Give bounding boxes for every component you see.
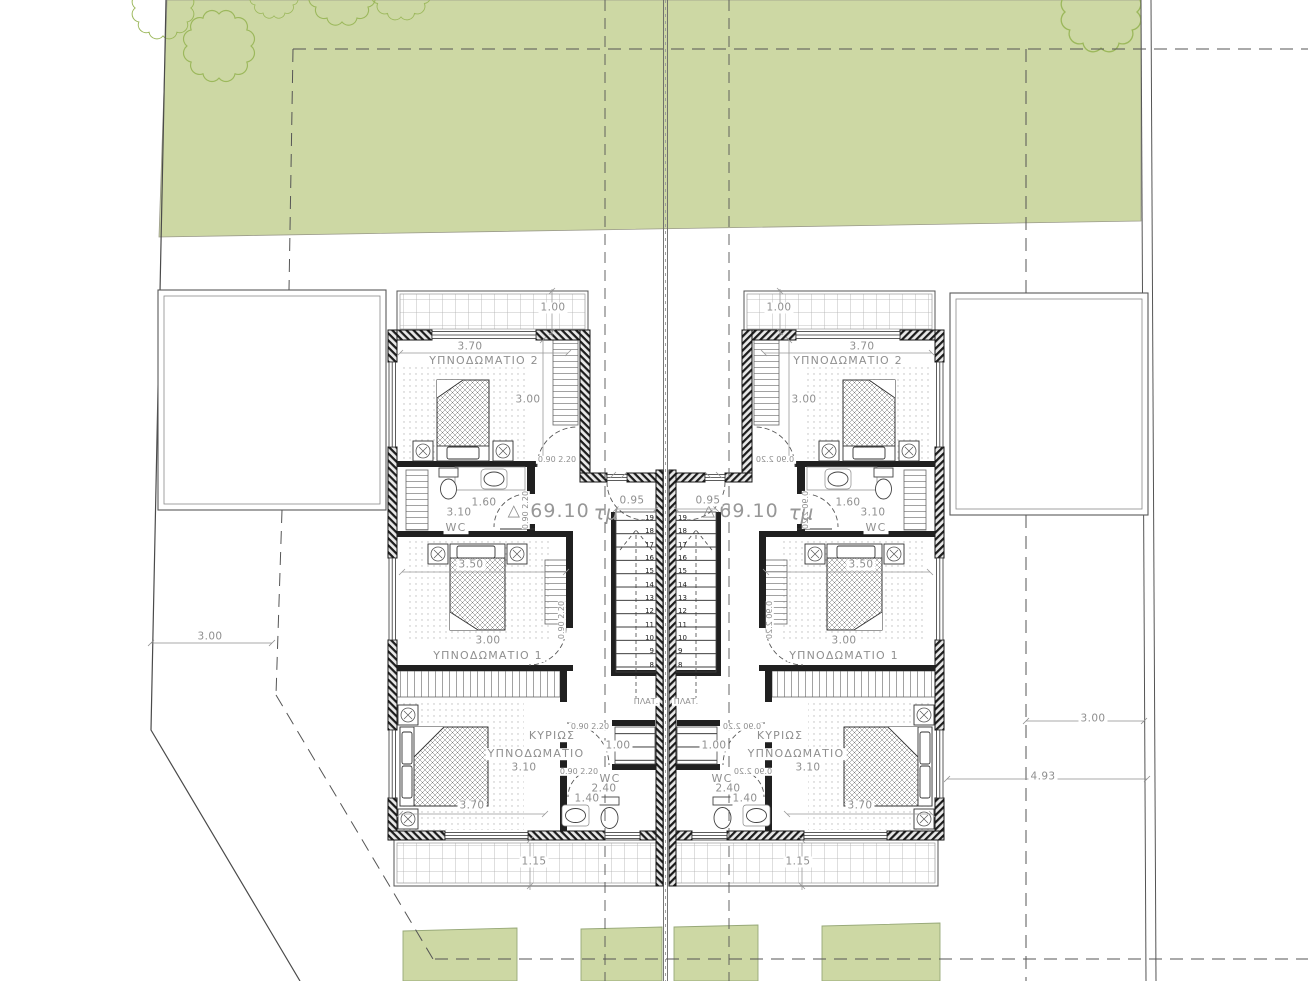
right-master-width-dim: 3.70: [846, 800, 875, 811]
left-wc1-width-dim: 1.60: [470, 497, 499, 508]
left-bed2-width-dim: 3.70: [456, 341, 485, 352]
site-dim-right-setback: 3.00: [1079, 713, 1108, 724]
left-bed2-depth-dim: 3.00: [514, 394, 543, 405]
left-stair-numbers: 1918171615141312111098: [637, 512, 654, 672]
left-balcony-bottom-dim: 1.15: [520, 856, 549, 867]
right-master-door-dim: 0.90 2.20: [721, 723, 763, 731]
left-landing-label: ΠΛΑΤ.: [632, 698, 660, 706]
right-area-value: 69.10: [719, 502, 778, 522]
stair-step-number: 9: [637, 645, 654, 658]
stair-step-number: 18: [637, 525, 654, 538]
left-bed1-door-dim: 0.90 2.20: [558, 601, 566, 639]
left-bed2-door-dim: 0.90 2.20: [536, 456, 578, 464]
stair-step-number: 19: [637, 512, 654, 525]
stair-step-number: 9: [678, 645, 695, 658]
floor-plan: 3.003.004.931.003.70ΥΠΝΟΔΩΜΑΤΙΟ 23.000.9…: [0, 0, 1308, 981]
stair-step-number: 10: [637, 632, 654, 645]
stair-step-number: 11: [637, 619, 654, 632]
stair-step-number: 8: [678, 659, 695, 672]
right-master-depth-dim: 3.10: [794, 762, 823, 773]
left-bed1-name: ΥΠΝΟΔΩΜΑΤΙΟ 1: [431, 650, 545, 662]
right-wc1-length-dim: 3.10: [859, 507, 888, 518]
right-bed1-depth-dim: 3.00: [830, 635, 859, 646]
left-master-depth-dim: 3.10: [510, 762, 539, 773]
stair-step-number: 16: [637, 552, 654, 565]
right-hall-width-dim: 1.00: [700, 740, 729, 751]
left-bed2-name: ΥΠΝΟΔΩΜΑΤΙΟ 2: [427, 355, 541, 367]
stair-step-number: 12: [637, 605, 654, 618]
stair-step-number: 18: [678, 525, 695, 538]
stair-step-number: 13: [678, 592, 695, 605]
left-area-triangle: △: [508, 503, 521, 520]
stair-step-number: 12: [678, 605, 695, 618]
left-wc1-door-dim: 0.90 2.20: [522, 491, 530, 529]
site-dim-right-offset: 4.93: [1029, 771, 1058, 782]
right-wc2-door-dim: 0.90 2.20: [732, 768, 774, 776]
left-master-width-dim: 3.70: [458, 800, 487, 811]
left-wc1-name: WC: [444, 522, 469, 534]
right-bed2-depth-dim: 3.00: [790, 394, 819, 405]
stair-step-number: 15: [637, 565, 654, 578]
right-landing-label: ΠΛΑΤ.: [672, 698, 700, 706]
left-wc2-width-dim: 1.40: [573, 793, 602, 804]
stair-step-number: 11: [678, 619, 695, 632]
left-stair-width-dim: 0.95: [618, 495, 647, 506]
right-stair-width-dim: 0.95: [694, 495, 723, 506]
stair-step-number: 10: [678, 632, 695, 645]
left-area-unit: τμ: [594, 503, 619, 524]
right-master-name-line2: ΥΠΝΟΔΩΜΑΤΙΟ: [746, 748, 847, 760]
right-balcony-top-dim: 1.00: [765, 302, 794, 313]
stair-step-number: 14: [637, 579, 654, 592]
right-bed2-door-dim: 0.90 2.20: [754, 456, 796, 464]
right-bed1-name: ΥΠΝΟΔΩΜΑΤΙΟ 1: [787, 650, 901, 662]
left-wc2-door-dim: 0.90 2.20: [558, 768, 600, 776]
stair-step-number: 14: [678, 579, 695, 592]
left-master-door-dim: 0.90 2.20: [569, 723, 611, 731]
right-wc1-name: WC: [864, 522, 889, 534]
left-wc1-length-dim: 3.10: [445, 507, 474, 518]
right-bed1-door-dim: 0.90 2.20: [766, 601, 774, 639]
site-dim-left-setback: 3.00: [196, 631, 225, 642]
stair-step-number: 17: [637, 539, 654, 552]
left-balcony-top-dim: 1.00: [539, 302, 568, 313]
right-stair-numbers: 1918171615141312111098: [678, 512, 695, 672]
stair-step-number: 13: [637, 592, 654, 605]
left-bed1-width-dim: 3.50: [457, 559, 486, 570]
left-hall-width-dim: 1.00: [604, 740, 633, 751]
plan-annotations: 3.003.004.931.003.70ΥΠΝΟΔΩΜΑΤΙΟ 23.000.9…: [0, 0, 1308, 981]
left-master-name-line2: ΥΠΝΟΔΩΜΑΤΙΟ: [486, 748, 587, 760]
right-bed2-width-dim: 3.70: [848, 341, 877, 352]
left-bed1-depth-dim: 3.00: [474, 635, 503, 646]
stair-step-number: 16: [678, 552, 695, 565]
right-wc2-width-dim: 1.40: [731, 793, 760, 804]
stair-step-number: 8: [637, 659, 654, 672]
left-area-value: 69.10: [530, 502, 589, 522]
stair-step-number: 17: [678, 539, 695, 552]
right-bed2-name: ΥΠΝΟΔΩΜΑΤΙΟ 2: [791, 355, 905, 367]
right-area-unit: τμ: [789, 503, 814, 524]
left-master-name-line1: ΚΥΡΙΩΣ: [527, 730, 577, 742]
stair-step-number: 15: [678, 565, 695, 578]
stair-step-number: 19: [678, 512, 695, 525]
right-balcony-bottom-dim: 1.15: [784, 856, 813, 867]
right-bed1-width-dim: 3.50: [847, 559, 876, 570]
right-master-name-line1: ΚΥΡΙΩΣ: [755, 730, 805, 742]
